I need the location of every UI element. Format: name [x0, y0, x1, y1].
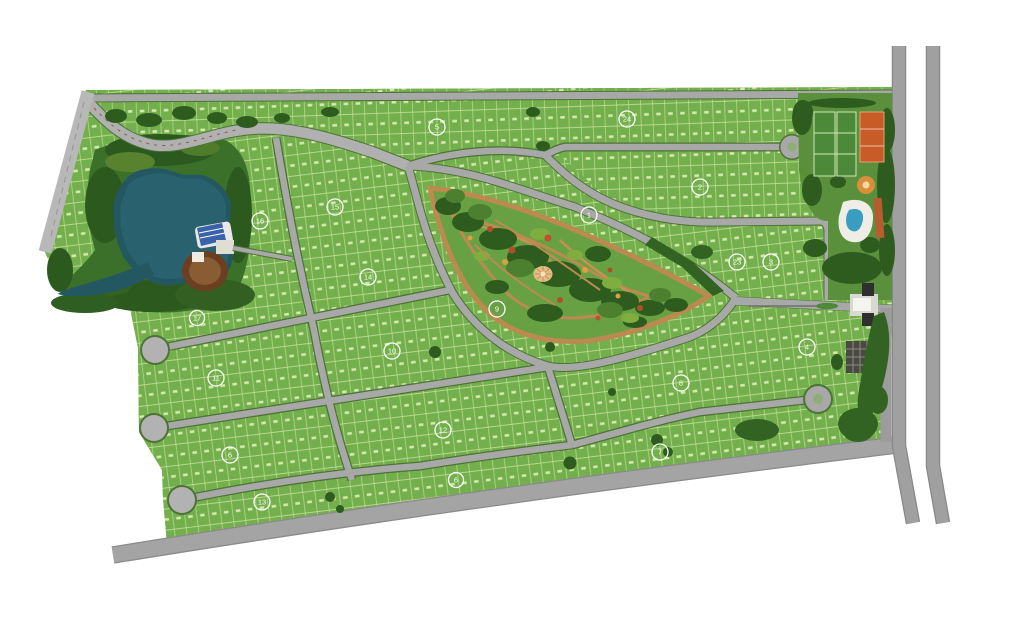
svg-text:24: 24 [623, 115, 631, 124]
svg-text:17: 17 [193, 314, 201, 323]
svg-text:4: 4 [805, 343, 809, 352]
svg-text:11: 11 [212, 374, 220, 383]
svg-text:2: 2 [698, 183, 702, 192]
svg-text:23: 23 [733, 258, 741, 267]
svg-text:15: 15 [331, 203, 339, 212]
svg-text:6: 6 [454, 476, 458, 485]
svg-text:14: 14 [364, 273, 372, 282]
svg-text:10: 10 [388, 347, 396, 356]
svg-text:6: 6 [228, 451, 232, 460]
svg-text:3: 3 [769, 258, 773, 267]
svg-text:16: 16 [256, 217, 264, 226]
svg-text:8: 8 [679, 379, 683, 388]
svg-text:1: 1 [587, 211, 591, 220]
svg-text:13: 13 [258, 498, 266, 507]
svg-text:12: 12 [439, 426, 447, 435]
svg-text:7: 7 [658, 448, 662, 457]
svg-text:9: 9 [495, 305, 499, 314]
svg-text:5: 5 [435, 123, 439, 132]
